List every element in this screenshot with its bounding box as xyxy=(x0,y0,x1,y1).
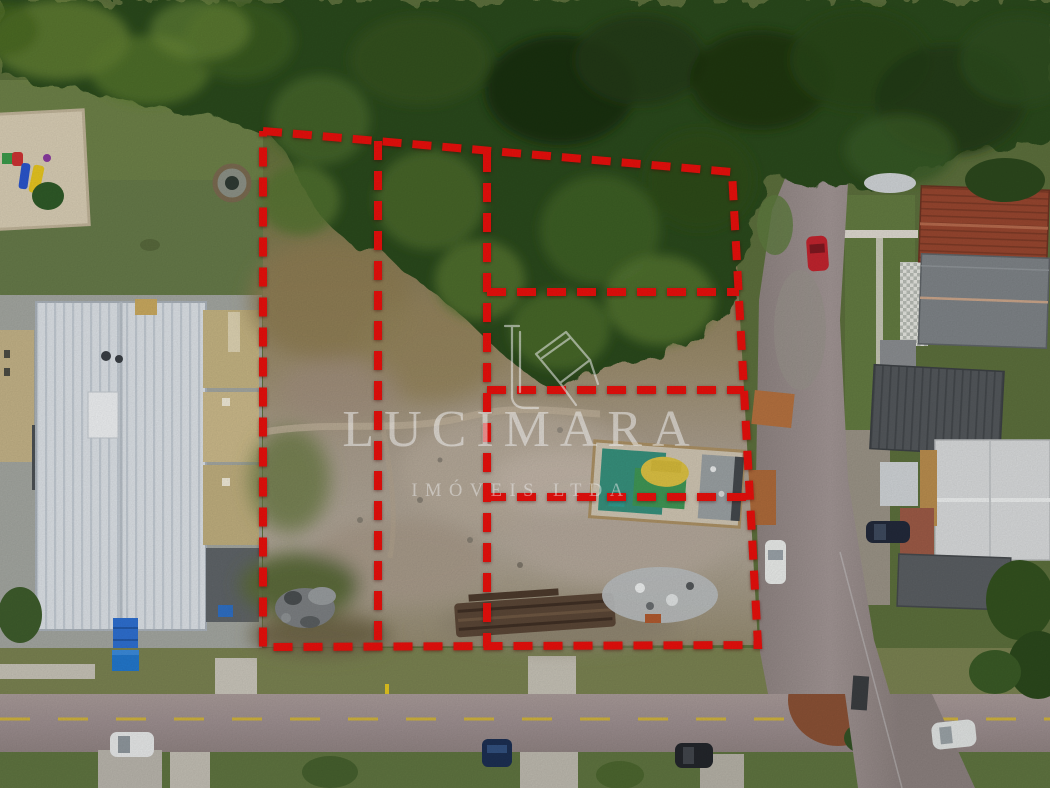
photo-grain xyxy=(0,0,1050,788)
aerial-photo: LUCIMARA IMÓVEIS LTDA xyxy=(0,0,1050,788)
scene-svg: LUCIMARA IMÓVEIS LTDA xyxy=(0,0,1050,788)
